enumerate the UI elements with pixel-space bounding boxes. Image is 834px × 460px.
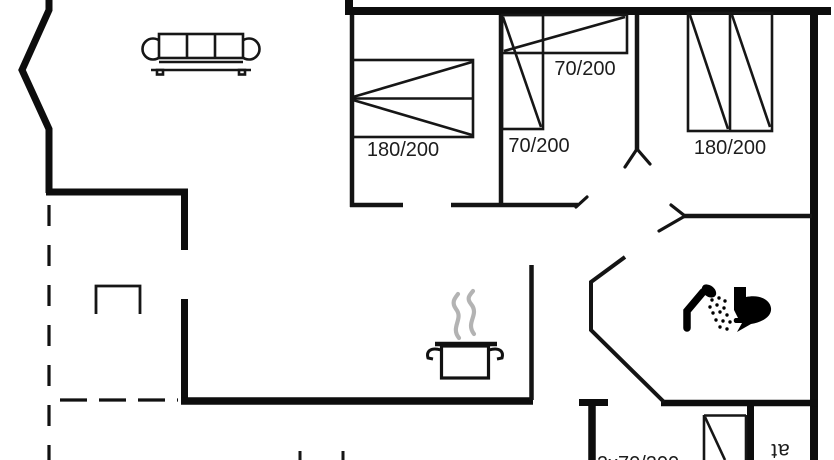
label-bed-double-left: 180/200 — [367, 139, 439, 161]
door-tick-bed3-a — [625, 149, 637, 167]
pot-handle-left — [428, 349, 441, 359]
door-tick-bath-a — [671, 205, 685, 216]
door-markers — [576, 149, 685, 231]
pot-handle-right — [489, 349, 502, 359]
sofa-cushions — [159, 34, 243, 58]
bed-annex-cut — [704, 415, 746, 460]
bed-single-top — [502, 15, 627, 53]
toilet-icon — [734, 287, 771, 332]
label-bed-annex-cut: 2x70/200 — [597, 453, 679, 460]
door-tick-bath-b — [659, 216, 685, 231]
bed-double-right — [688, 13, 772, 131]
door-tick-bed3-b — [637, 149, 650, 164]
label-rotated-fragment: at — [770, 439, 790, 460]
wall-hall-chamfer — [591, 257, 664, 402]
sofa-foot-left — [157, 70, 163, 75]
door-tick-hall-left — [576, 197, 587, 207]
steam-icon — [454, 291, 474, 338]
terrace-dashed-lines — [49, 205, 178, 460]
bed-single-vertical — [502, 15, 543, 129]
label-bed-double-right: 180/200 — [694, 137, 766, 159]
exterior-walls — [22, 0, 831, 460]
cutoff-ticks — [300, 451, 343, 460]
label-bed-single-top: 70/200 — [554, 58, 615, 80]
beds — [352, 13, 772, 460]
sofa-icon — [143, 34, 260, 75]
sofa-foot-right — [239, 70, 245, 75]
wall-left-zigzag — [22, 0, 49, 193]
shower-spray-dots — [708, 296, 731, 330]
terrace-furniture-icon — [96, 286, 140, 314]
floor-plan-svg: 180/200 70/200 70/200 180/200 2x70/200 a… — [0, 0, 834, 460]
pot-body — [442, 346, 489, 378]
label-bed-single-vertical: 70/200 — [508, 135, 569, 157]
floor-plan: 180/200 70/200 70/200 180/200 2x70/200 a… — [0, 0, 834, 460]
shower-icon — [687, 282, 732, 331]
bed-double-left — [352, 60, 473, 137]
cooking-pot-icon — [428, 344, 503, 378]
